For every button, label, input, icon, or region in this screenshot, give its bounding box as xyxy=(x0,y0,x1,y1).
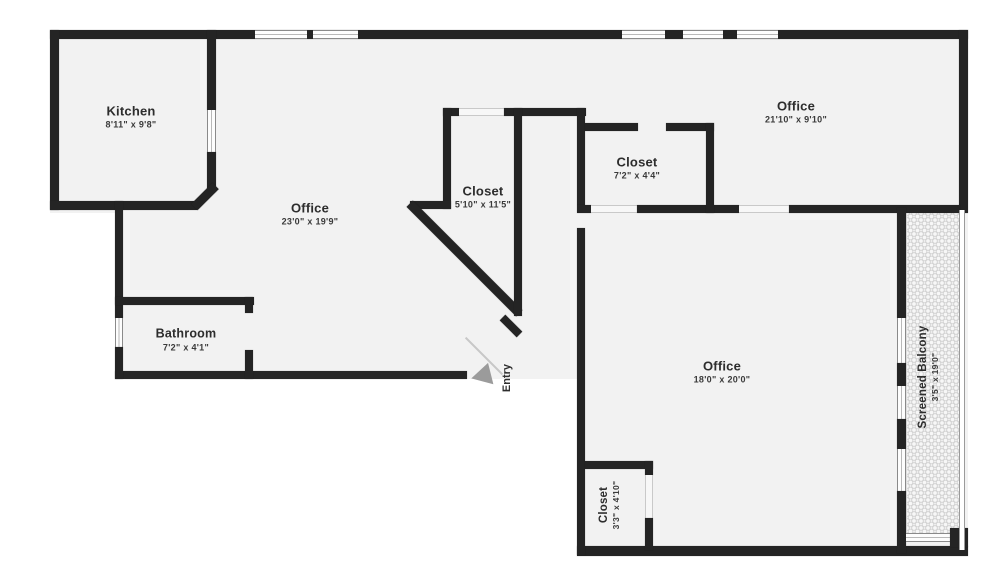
room-label-office-upper: Office 21'10" x 9'10" xyxy=(765,99,827,126)
wall-divider-corner xyxy=(577,205,591,213)
room-dims-closet-main: 5'10" x 11'5" xyxy=(455,199,511,211)
opening-closet-main-door xyxy=(459,108,504,116)
window-top-3 xyxy=(622,30,665,39)
opening-divider-door xyxy=(739,205,789,213)
wall-exterior-right xyxy=(959,30,968,213)
room-name-closet-lower: Closet xyxy=(598,481,611,530)
room-label-balcony: Screened Balcony 3'5" x 19'0" xyxy=(917,326,941,429)
room-dims-closet-upper: 7'2" x 4'4" xyxy=(614,170,660,182)
wall-exterior-bottom-left xyxy=(115,371,467,379)
wall-bathroom-right-upper xyxy=(245,297,253,313)
wall-bathroom-top xyxy=(115,297,254,305)
wall-closet-upper-top-left xyxy=(585,123,638,131)
wall-divider-right xyxy=(789,205,960,213)
wall-mid-vertical-lower xyxy=(577,228,585,555)
window-top-2 xyxy=(313,30,358,39)
room-dims-closet-lower: 3'3" x 4'10" xyxy=(611,481,622,530)
window-kitchen-right xyxy=(207,110,216,152)
wall-mid-vertical-upper xyxy=(577,108,585,205)
room-label-office-lower: Office 18'0" x 20'0" xyxy=(694,359,751,386)
room-name-kitchen: Kitchen xyxy=(106,104,157,119)
wall-closet-lower-right-lower xyxy=(645,518,653,550)
floor-plan-canvas: Kitchen 8'11" x 9'8" Office 23'0" x 19'9… xyxy=(0,0,1000,585)
wall-exterior-left xyxy=(50,30,59,210)
window-top-5 xyxy=(737,30,778,39)
wall-closet-main-left xyxy=(443,108,451,209)
wall-kitchen-right-upper xyxy=(207,30,216,110)
room-dims-kitchen: 8'11" x 9'8" xyxy=(106,119,157,131)
opening-closet-lower-door xyxy=(645,475,653,518)
room-name-closet-main: Closet xyxy=(455,184,511,199)
window-top-4 xyxy=(683,30,723,39)
wall-balcony-left-3 xyxy=(897,419,906,449)
window-balcony-3 xyxy=(897,449,906,491)
room-label-closet-main: Closet 5'10" x 11'5" xyxy=(455,184,511,211)
room-label-office-main: Office 23'0" x 19'9" xyxy=(282,201,339,228)
wall-exterior-bottom xyxy=(577,546,968,556)
room-label-kitchen: Kitchen 8'11" x 9'8" xyxy=(106,104,157,131)
wall-bathroom-left-lower xyxy=(115,347,123,379)
wall-closet-main-right xyxy=(514,108,522,316)
wall-kitchen-bottom xyxy=(50,201,197,210)
window-balcony-2 xyxy=(897,386,906,419)
balcony-screen-edge xyxy=(959,210,965,550)
entry-label: Entry xyxy=(501,364,513,392)
room-dims-office-lower: 18'0" x 20'0" xyxy=(694,374,751,386)
wall-balcony-left-2 xyxy=(897,363,906,386)
window-bathroom-left xyxy=(115,318,123,347)
room-name-office-lower: Office xyxy=(694,359,751,374)
room-label-bathroom: Bathroom 7'2" x 4'1" xyxy=(156,327,217,354)
wall-closet-upper-right xyxy=(706,123,714,213)
wall-divider-mid xyxy=(637,205,739,213)
room-dims-office-upper: 21'10" x 9'10" xyxy=(765,114,827,126)
room-name-closet-upper: Closet xyxy=(614,155,660,170)
room-name-bathroom: Bathroom xyxy=(156,327,217,342)
window-balcony-1 xyxy=(897,318,906,363)
window-balcony-bottom xyxy=(906,533,952,542)
wall-closet-lower-right-upper xyxy=(645,461,653,475)
wall-exterior-top xyxy=(50,30,968,39)
room-name-office-main: Office xyxy=(282,201,339,216)
wall-balcony-left-1 xyxy=(897,208,906,318)
room-label-closet-lower: Closet 3'3" x 4'10" xyxy=(598,481,622,530)
room-dims-balcony: 3'5" x 19'0" xyxy=(930,326,941,429)
opening-divider-left xyxy=(591,205,637,213)
room-dims-bathroom: 7'2" x 4'1" xyxy=(156,342,217,354)
room-name-office-upper: Office xyxy=(765,99,827,114)
wall-balcony-left-4 xyxy=(897,491,906,553)
wall-bathroom-right-lower xyxy=(245,350,253,379)
wall-closet-lower-top xyxy=(585,461,653,469)
room-dims-office-main: 23'0" x 19'9" xyxy=(282,216,339,228)
room-name-balcony: Screened Balcony xyxy=(917,326,930,429)
room-label-closet-upper: Closet 7'2" x 4'4" xyxy=(614,155,660,182)
window-top-1 xyxy=(255,30,307,39)
